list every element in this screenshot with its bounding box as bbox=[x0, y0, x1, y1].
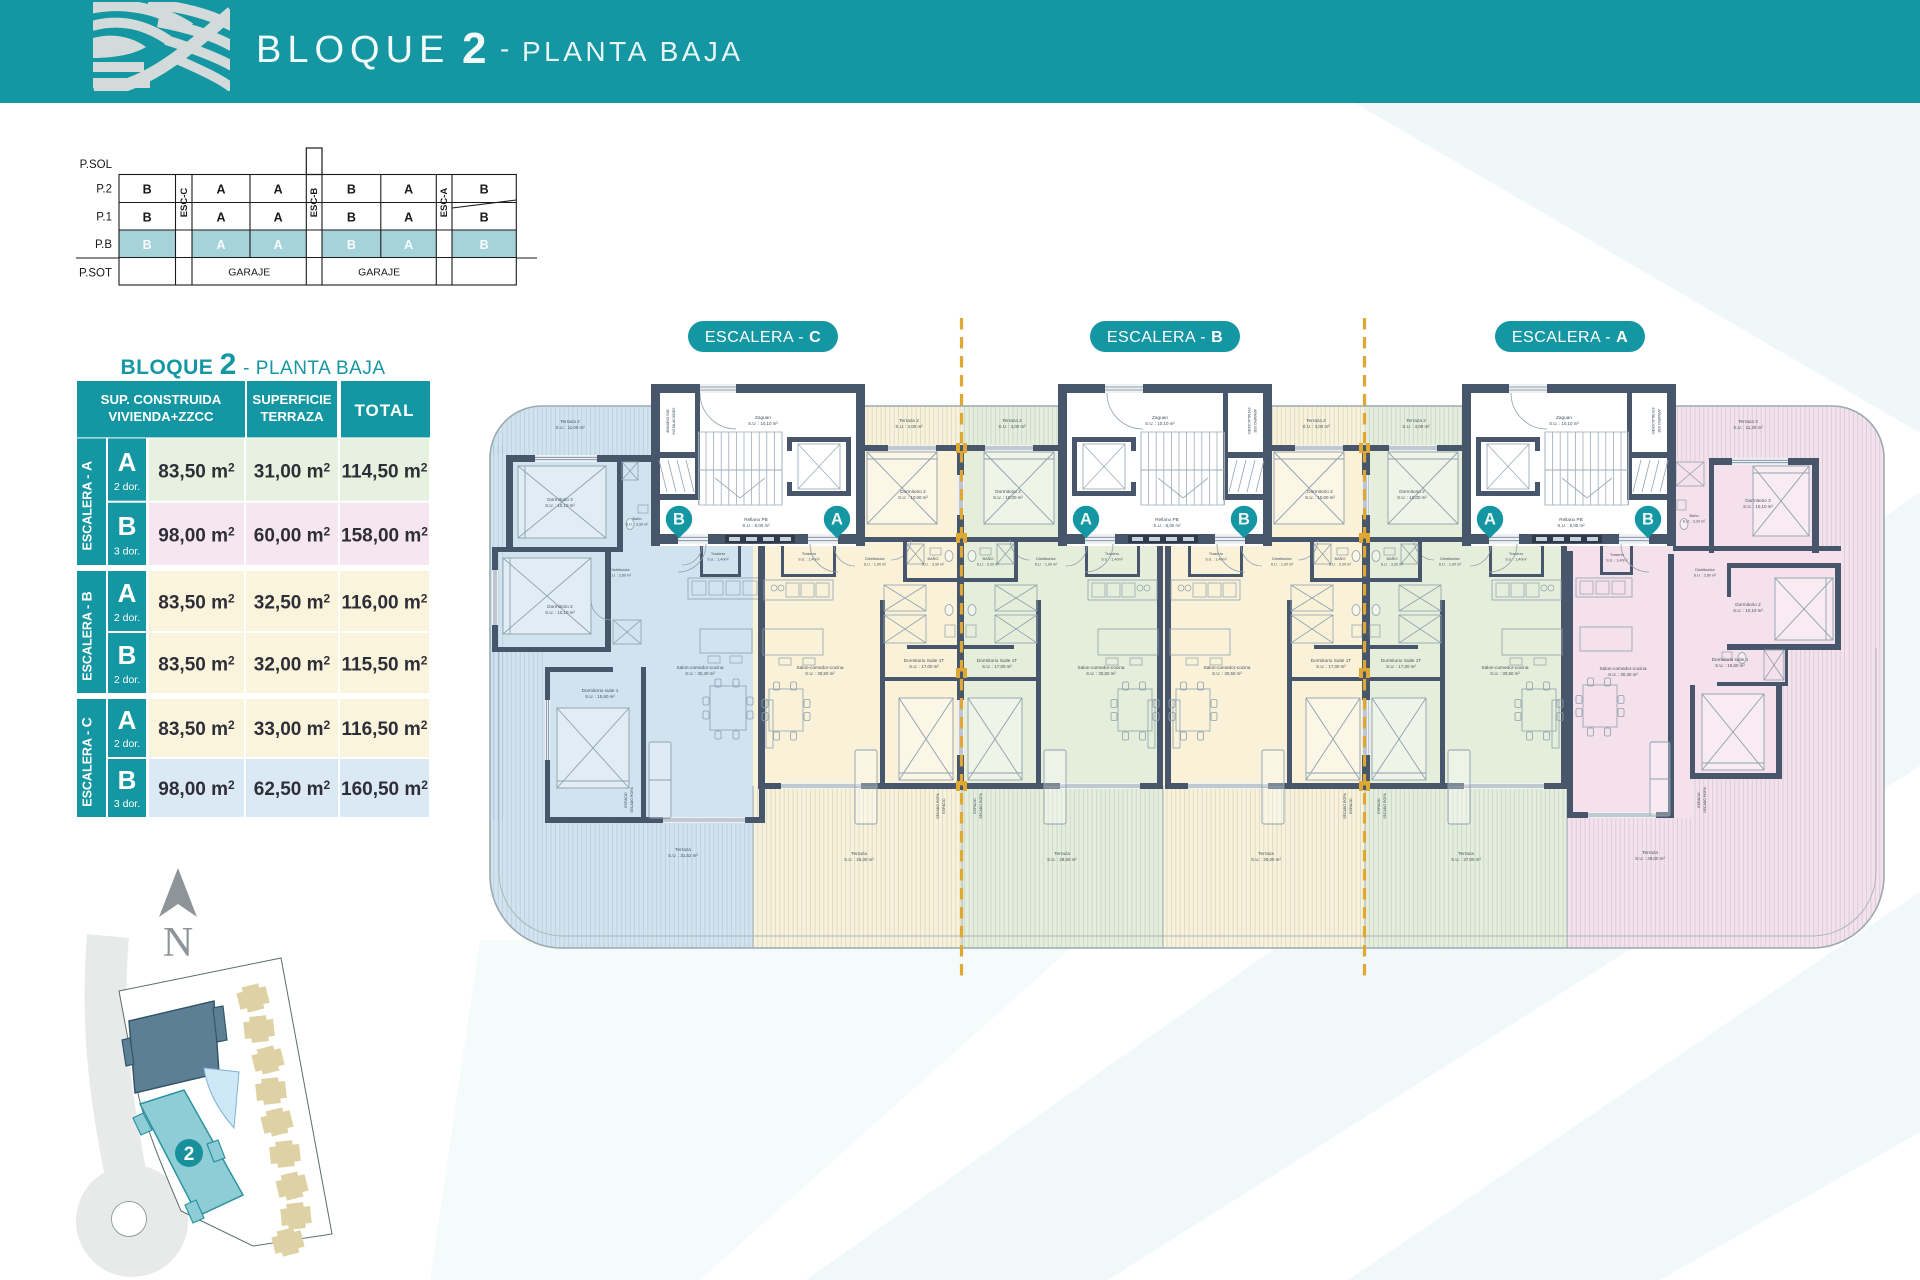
svg-text:S.U. : 3,30 m²: S.U. : 3,30 m² bbox=[922, 562, 945, 566]
svg-text:Distribuidor: Distribuidor bbox=[1440, 556, 1460, 561]
svg-text:S.U. : 1,90 m²: S.U. : 1,90 m² bbox=[1035, 562, 1058, 566]
svg-text:A: A bbox=[118, 705, 137, 735]
svg-text:Terraza: Terraza bbox=[851, 851, 867, 856]
svg-text:N: N bbox=[163, 920, 193, 966]
svg-text:S.U. : 1,40m²: S.U. : 1,40m² bbox=[1505, 557, 1527, 561]
svg-text:116,00 m2: 116,00 m2 bbox=[342, 591, 428, 613]
svg-text:S.U. : 28,00 m²: S.U. : 28,00 m² bbox=[1251, 857, 1281, 862]
svg-text:A: A bbox=[1484, 511, 1496, 529]
svg-text:60,00 m2: 60,00 m2 bbox=[254, 525, 331, 547]
svg-text:S.U. : 30,50 m²: S.U. : 30,50 m² bbox=[805, 671, 835, 676]
svg-text:S.U. : 1,40m²: S.U. : 1,40m² bbox=[1101, 557, 1123, 561]
svg-text:A: A bbox=[216, 211, 225, 225]
svg-text:SECADO ROPA: SECADO ROPA bbox=[1343, 793, 1347, 819]
svg-text:B: B bbox=[118, 640, 137, 670]
svg-text:Dormitorio 2: Dormitorio 2 bbox=[1735, 602, 1761, 607]
svg-text:P.SOT: P.SOT bbox=[79, 268, 112, 280]
svg-text:S.U. : 25,00 m²: S.U. : 25,00 m² bbox=[844, 857, 874, 862]
svg-text:A: A bbox=[831, 511, 843, 529]
svg-text:B: B bbox=[118, 765, 137, 795]
svg-text:2: 2 bbox=[462, 24, 486, 73]
svg-text:S.U. : 10,10 m²: S.U. : 10,10 m² bbox=[748, 421, 778, 426]
svg-text:A: A bbox=[274, 183, 283, 197]
svg-text:A: A bbox=[274, 211, 283, 225]
svg-text:2 dor.: 2 dor. bbox=[114, 738, 140, 750]
svg-text:S.U. : 28,50 m²: S.U. : 28,50 m² bbox=[1047, 857, 1077, 862]
svg-text:S.U. : 15,50 m²: S.U. : 15,50 m² bbox=[585, 694, 615, 699]
svg-text:Terraza: Terraza bbox=[1258, 851, 1274, 856]
svg-text:ESPACIO: ESPACIO bbox=[1377, 798, 1381, 814]
svg-text:S.U. : 49,00 m²: S.U. : 49,00 m² bbox=[1635, 856, 1665, 861]
svg-text:ESCALERA - C: ESCALERA - C bbox=[79, 717, 95, 807]
svg-text:Dormitorio 3: Dormitorio 3 bbox=[547, 497, 573, 502]
svg-text:S.U. : 1,40m²: S.U. : 1,40m² bbox=[707, 557, 729, 561]
svg-text:83,50 m2: 83,50 m2 bbox=[158, 718, 235, 740]
svg-text:BAÑO: BAÑO bbox=[1334, 556, 1345, 561]
svg-text:Dormitorio Suite 1T: Dormitorio Suite 1T bbox=[977, 658, 1018, 663]
svg-text:ARMARIO SSE: ARMARIO SSE bbox=[1657, 409, 1661, 433]
svg-text:S.U. : 3,30 m²: S.U. : 3,30 m² bbox=[1381, 562, 1404, 566]
svg-text:S.U. : 11,20 m²: S.U. : 11,20 m² bbox=[1733, 425, 1763, 430]
svg-text:S.U. : 10,00 m²: S.U. : 10,00 m² bbox=[898, 495, 928, 500]
svg-text:B: B bbox=[118, 511, 137, 541]
svg-text:S.U. : 30,40 m²: S.U. : 30,40 m² bbox=[1608, 672, 1638, 677]
svg-text:S.U. : 10,10 m²: S.U. : 10,10 m² bbox=[1733, 608, 1763, 613]
svg-text:B: B bbox=[143, 211, 152, 225]
svg-text:P.SOL: P.SOL bbox=[80, 159, 113, 171]
svg-text:Terraza 2: Terraza 2 bbox=[1406, 418, 1426, 423]
svg-text:SECADO ROPA: SECADO ROPA bbox=[936, 793, 940, 819]
svg-text:A: A bbox=[118, 578, 137, 608]
svg-text:Zaguan: Zaguan bbox=[1152, 415, 1168, 420]
svg-text:Distribuidor: Distribuidor bbox=[1695, 567, 1715, 572]
svg-text:ESPACIO: ESPACIO bbox=[624, 792, 628, 808]
svg-text:32,50 m2: 32,50 m2 bbox=[254, 591, 331, 613]
svg-text:62,50 m2: 62,50 m2 bbox=[254, 778, 331, 800]
svg-text:83,50 m2: 83,50 m2 bbox=[158, 460, 235, 482]
svg-text:Dormitorio Suite 1T: Dormitorio Suite 1T bbox=[1381, 658, 1422, 663]
svg-text:Distribuidor: Distribuidor bbox=[610, 567, 630, 572]
svg-text:B: B bbox=[347, 238, 356, 252]
svg-text:A: A bbox=[1080, 511, 1092, 529]
svg-text:B: B bbox=[480, 238, 489, 252]
svg-text:Terraza 2: Terraza 2 bbox=[1306, 418, 1326, 423]
svg-text:83,50 m2: 83,50 m2 bbox=[158, 591, 235, 613]
svg-text:Terraza: Terraza bbox=[1458, 851, 1474, 856]
svg-text:2 dor.: 2 dor. bbox=[114, 674, 140, 686]
svg-text:ARMARIO SSE: ARMARIO SSE bbox=[1253, 409, 1257, 433]
svg-text:A: A bbox=[274, 238, 283, 252]
svg-text:SECADO ROPA: SECADO ROPA bbox=[630, 787, 634, 813]
svg-text:S.U. : 4,00 m²: S.U. : 4,00 m² bbox=[895, 424, 923, 429]
svg-text:Baño: Baño bbox=[632, 516, 641, 521]
svg-text:Zaguan: Zaguan bbox=[1556, 415, 1572, 420]
svg-text:S.U. : 30,50 m²: S.U. : 30,50 m² bbox=[1212, 671, 1242, 676]
svg-text:S.U. : 2,80 m²: S.U. : 2,80 m² bbox=[609, 573, 632, 577]
svg-text:98,00 m2: 98,00 m2 bbox=[158, 778, 235, 800]
svg-text:83,50 m2: 83,50 m2 bbox=[158, 653, 235, 675]
svg-text:3 dor.: 3 dor. bbox=[114, 798, 140, 810]
svg-text:B: B bbox=[1642, 511, 1654, 529]
svg-text:B: B bbox=[1238, 511, 1250, 529]
svg-text:Dormitorio suite 1: Dormitorio suite 1 bbox=[582, 688, 619, 693]
svg-text:GARAJE: GARAJE bbox=[358, 267, 400, 279]
svg-text:Dormitorio Suite 1T: Dormitorio Suite 1T bbox=[904, 658, 945, 663]
svg-text:S.U. : 30,40 m²: S.U. : 30,40 m² bbox=[685, 671, 715, 676]
svg-text:2 dor.: 2 dor. bbox=[114, 481, 140, 493]
svg-text:Dormitorio 2: Dormitorio 2 bbox=[995, 489, 1021, 494]
svg-text:3 dor.: 3 dor. bbox=[114, 545, 140, 557]
svg-text:33,00 m2: 33,00 m2 bbox=[254, 718, 331, 740]
svg-text:Dormitorio 2: Dormitorio 2 bbox=[1307, 489, 1333, 494]
svg-text:Salon-comedor-cocina: Salon-comedor-cocina bbox=[1482, 665, 1529, 670]
svg-text:S.U. : 10,10 m²: S.U. : 10,10 m² bbox=[1743, 504, 1773, 509]
svg-text:S.U. : 3,30 m²: S.U. : 3,30 m² bbox=[626, 522, 649, 526]
svg-text:S.U. : 1,90 m²: S.U. : 1,90 m² bbox=[1271, 562, 1294, 566]
svg-text:SUP. CONSTRUIDA: SUP. CONSTRUIDA bbox=[101, 392, 222, 407]
svg-text:SUPERFICIE: SUPERFICIE bbox=[252, 392, 331, 407]
svg-text:SECADO ROPA: SECADO ROPA bbox=[979, 793, 983, 819]
svg-text:INSTALACIONES: INSTALACIONES bbox=[1651, 408, 1655, 436]
svg-text:S.U. : 8,00 m²: S.U. : 8,00 m² bbox=[1153, 523, 1181, 528]
svg-text:116,50 m2: 116,50 m2 bbox=[342, 718, 428, 740]
svg-text:114,50 m2: 114,50 m2 bbox=[342, 460, 428, 482]
svg-text:B: B bbox=[480, 183, 489, 197]
svg-text:S.U. : 3,30 m²: S.U. : 3,30 m² bbox=[1329, 562, 1352, 566]
svg-text:Zaguan: Zaguan bbox=[755, 415, 771, 420]
svg-text:S.U. : 2,80 m²: S.U. : 2,80 m² bbox=[1694, 573, 1717, 577]
svg-text:Rellano PB: Rellano PB bbox=[744, 517, 767, 522]
svg-text:ESPACIO: ESPACIO bbox=[1349, 798, 1353, 814]
svg-text:ESPACIO: ESPACIO bbox=[1697, 792, 1701, 808]
svg-text:S.U. : 4,00 m²: S.U. : 4,00 m² bbox=[998, 424, 1026, 429]
svg-text:Terraza 2: Terraza 2 bbox=[899, 418, 919, 423]
svg-text:2 dor.: 2 dor. bbox=[114, 612, 140, 624]
svg-text:S.U. : 1,90 m²: S.U. : 1,90 m² bbox=[1439, 562, 1462, 566]
svg-text:S.U. : 10,00 m²: S.U. : 10,00 m² bbox=[993, 495, 1023, 500]
svg-text:2: 2 bbox=[184, 1144, 195, 1165]
svg-text:ESC-A: ESC-A bbox=[439, 188, 450, 218]
svg-text:BAÑO: BAÑO bbox=[927, 556, 938, 561]
svg-text:Trastero: Trastero bbox=[1209, 551, 1223, 556]
svg-text:S.U. : 4,00 m²: S.U. : 4,00 m² bbox=[1302, 424, 1330, 429]
svg-text:ESPACIO: ESPACIO bbox=[942, 798, 946, 814]
svg-text:31,00 m2: 31,00 m2 bbox=[254, 460, 331, 482]
svg-text:Distribuidor: Distribuidor bbox=[1272, 556, 1292, 561]
svg-text:P.1: P.1 bbox=[96, 212, 112, 224]
svg-text:S.U. : 27,00 m²: S.U. : 27,00 m² bbox=[1451, 857, 1481, 862]
svg-text:S.U. : 10,00 m²: S.U. : 10,00 m² bbox=[1397, 495, 1427, 500]
svg-text:158,00 m2: 158,00 m2 bbox=[341, 525, 428, 547]
svg-text:Salon-comedor-cocina: Salon-comedor-cocina bbox=[1078, 665, 1125, 670]
svg-text:98,00 m2: 98,00 m2 bbox=[158, 525, 235, 547]
svg-text:TOTAL: TOTAL bbox=[354, 401, 414, 420]
svg-text:ESCALERA - C: ESCALERA - C bbox=[705, 329, 821, 346]
svg-text:Dormitorio suite 1: Dormitorio suite 1 bbox=[1712, 657, 1749, 662]
svg-text:INSTALACIONES: INSTALACIONES bbox=[1247, 408, 1251, 436]
svg-text:B: B bbox=[347, 183, 356, 197]
svg-text:S.U. : 10,10 m²: S.U. : 10,10 m² bbox=[545, 610, 575, 615]
svg-text:ESCALERA - B: ESCALERA - B bbox=[1107, 329, 1223, 346]
svg-text:S.U. : 10,10 m²: S.U. : 10,10 m² bbox=[1145, 421, 1175, 426]
svg-text:S.U. : 10,10 m²: S.U. : 10,10 m² bbox=[545, 503, 575, 508]
svg-text:SECADO ROPA: SECADO ROPA bbox=[1703, 787, 1707, 813]
svg-text:ARMARIO SSE: ARMARIO SSE bbox=[666, 408, 670, 432]
svg-text:PLANTA BAJA: PLANTA BAJA bbox=[522, 36, 744, 67]
svg-text:GARAJE: GARAJE bbox=[228, 267, 270, 279]
svg-text:A: A bbox=[216, 238, 225, 252]
svg-text:S.U. : 3,30 m²: S.U. : 3,30 m² bbox=[1683, 519, 1706, 523]
svg-text:Terraza 2: Terraza 2 bbox=[560, 419, 580, 424]
svg-text:S.U. : 17,00 m²: S.U. : 17,00 m² bbox=[982, 664, 1012, 669]
svg-text:BAÑO: BAÑO bbox=[1386, 556, 1397, 561]
svg-text:SECADO ROPA: SECADO ROPA bbox=[1383, 793, 1387, 819]
svg-text:Rellano PB: Rellano PB bbox=[1155, 517, 1178, 522]
svg-text:Dormitorio 2: Dormitorio 2 bbox=[900, 489, 926, 494]
svg-text:Terraza 3: Terraza 3 bbox=[1738, 419, 1758, 424]
svg-text:ESCALERA - B: ESCALERA - B bbox=[79, 591, 95, 681]
svg-text:A: A bbox=[404, 211, 413, 225]
svg-text:S.U. : 31,52 m²: S.U. : 31,52 m² bbox=[668, 853, 698, 858]
svg-text:S.U. : 1,40m²: S.U. : 1,40m² bbox=[1205, 557, 1227, 561]
svg-text:VIVIENDA+ZZCC: VIVIENDA+ZZCC bbox=[108, 409, 214, 424]
svg-text:P.B: P.B bbox=[95, 239, 112, 251]
svg-text:115,50 m2: 115,50 m2 bbox=[342, 653, 428, 675]
svg-text:S.U. : 1,90 m²: S.U. : 1,90 m² bbox=[864, 562, 887, 566]
svg-text:S.U. : 30,50 m²: S.U. : 30,50 m² bbox=[1086, 671, 1116, 676]
svg-text:TERRAZA: TERRAZA bbox=[260, 409, 323, 424]
svg-text:BLOQUE: BLOQUE bbox=[256, 29, 450, 71]
svg-text:Dormitorio 3: Dormitorio 3 bbox=[1745, 498, 1771, 503]
svg-text:ESC-C: ESC-C bbox=[179, 188, 190, 218]
svg-text:P.2: P.2 bbox=[96, 184, 112, 196]
svg-text:Dormitorio Suite 1T: Dormitorio Suite 1T bbox=[1311, 658, 1352, 663]
svg-text:INSTALACIONES: INSTALACIONES bbox=[672, 407, 676, 435]
svg-text:Distribuidor: Distribuidor bbox=[865, 556, 885, 561]
svg-text:S.U. : 8,00 m²: S.U. : 8,00 m² bbox=[1557, 523, 1585, 528]
svg-text:Terraza: Terraza bbox=[675, 847, 691, 852]
svg-text:Salon-comedor-cocina: Salon-comedor-cocina bbox=[797, 665, 844, 670]
svg-text:Baño: Baño bbox=[1689, 513, 1698, 518]
svg-text:Distribuidor: Distribuidor bbox=[1036, 556, 1056, 561]
svg-text:S.U. : 1,40m²: S.U. : 1,40m² bbox=[798, 557, 820, 561]
svg-text:ESC-B: ESC-B bbox=[309, 188, 320, 218]
svg-text:B: B bbox=[347, 211, 356, 225]
svg-text:BAÑO: BAÑO bbox=[982, 556, 993, 561]
svg-text:ESPACIO: ESPACIO bbox=[973, 798, 977, 814]
svg-text:Terraza 2: Terraza 2 bbox=[1002, 418, 1022, 423]
svg-text:Terraza: Terraza bbox=[1054, 851, 1070, 856]
svg-text:S.U. : 30,50 m²: S.U. : 30,50 m² bbox=[1490, 671, 1520, 676]
svg-text:A: A bbox=[404, 238, 413, 252]
svg-text:B: B bbox=[673, 511, 685, 529]
svg-text:Salon-comedor-cocina: Salon-comedor-cocina bbox=[677, 665, 724, 670]
svg-text:Trastero: Trastero bbox=[711, 551, 725, 556]
svg-text:A: A bbox=[216, 183, 225, 197]
svg-text:B: B bbox=[143, 183, 152, 197]
svg-text:S.U. : 8,00 m²: S.U. : 8,00 m² bbox=[742, 523, 770, 528]
svg-text:S.U. : 3,30 m²: S.U. : 3,30 m² bbox=[977, 562, 1000, 566]
svg-text:Salon-comedor-cocina: Salon-comedor-cocina bbox=[1204, 665, 1251, 670]
svg-text:Terraza: Terraza bbox=[1642, 850, 1658, 855]
svg-text:S.U. : 11,00 m²: S.U. : 11,00 m² bbox=[555, 425, 585, 430]
svg-text:B: B bbox=[143, 238, 152, 252]
svg-text:S.U. : 15,50 m²: S.U. : 15,50 m² bbox=[1715, 663, 1745, 668]
svg-text:S.U. : 17,00 m²: S.U. : 17,00 m² bbox=[1386, 664, 1416, 669]
svg-text:ESCALERA - A: ESCALERA - A bbox=[79, 461, 95, 551]
svg-text:ESCALERA - A: ESCALERA - A bbox=[1512, 329, 1628, 346]
svg-text:Trastero: Trastero bbox=[802, 551, 816, 556]
svg-text:A: A bbox=[118, 447, 137, 477]
svg-text:S.U. : 10,00 m²: S.U. : 10,00 m² bbox=[1305, 495, 1335, 500]
svg-text:S.U. : 17,00 m²: S.U. : 17,00 m² bbox=[1316, 664, 1346, 669]
svg-text:S.U. : 10,10 m²: S.U. : 10,10 m² bbox=[1549, 421, 1579, 426]
svg-text:Salon-comedor-cocina: Salon-comedor-cocina bbox=[1600, 666, 1647, 671]
svg-text:Dormitorio 2: Dormitorio 2 bbox=[1399, 489, 1425, 494]
svg-text:A: A bbox=[404, 183, 413, 197]
svg-text:Rellano PB: Rellano PB bbox=[1559, 517, 1582, 522]
svg-text:B: B bbox=[480, 211, 489, 225]
svg-text:32,00 m2: 32,00 m2 bbox=[254, 653, 331, 675]
svg-text:S.U. : 4,00 m²: S.U. : 4,00 m² bbox=[1402, 424, 1430, 429]
svg-text:-: - bbox=[500, 33, 509, 64]
svg-text:S.U. : 17,00 m²: S.U. : 17,00 m² bbox=[909, 664, 939, 669]
svg-text:160,50 m2: 160,50 m2 bbox=[341, 778, 428, 800]
svg-text:Dormitorio 2: Dormitorio 2 bbox=[547, 604, 573, 609]
